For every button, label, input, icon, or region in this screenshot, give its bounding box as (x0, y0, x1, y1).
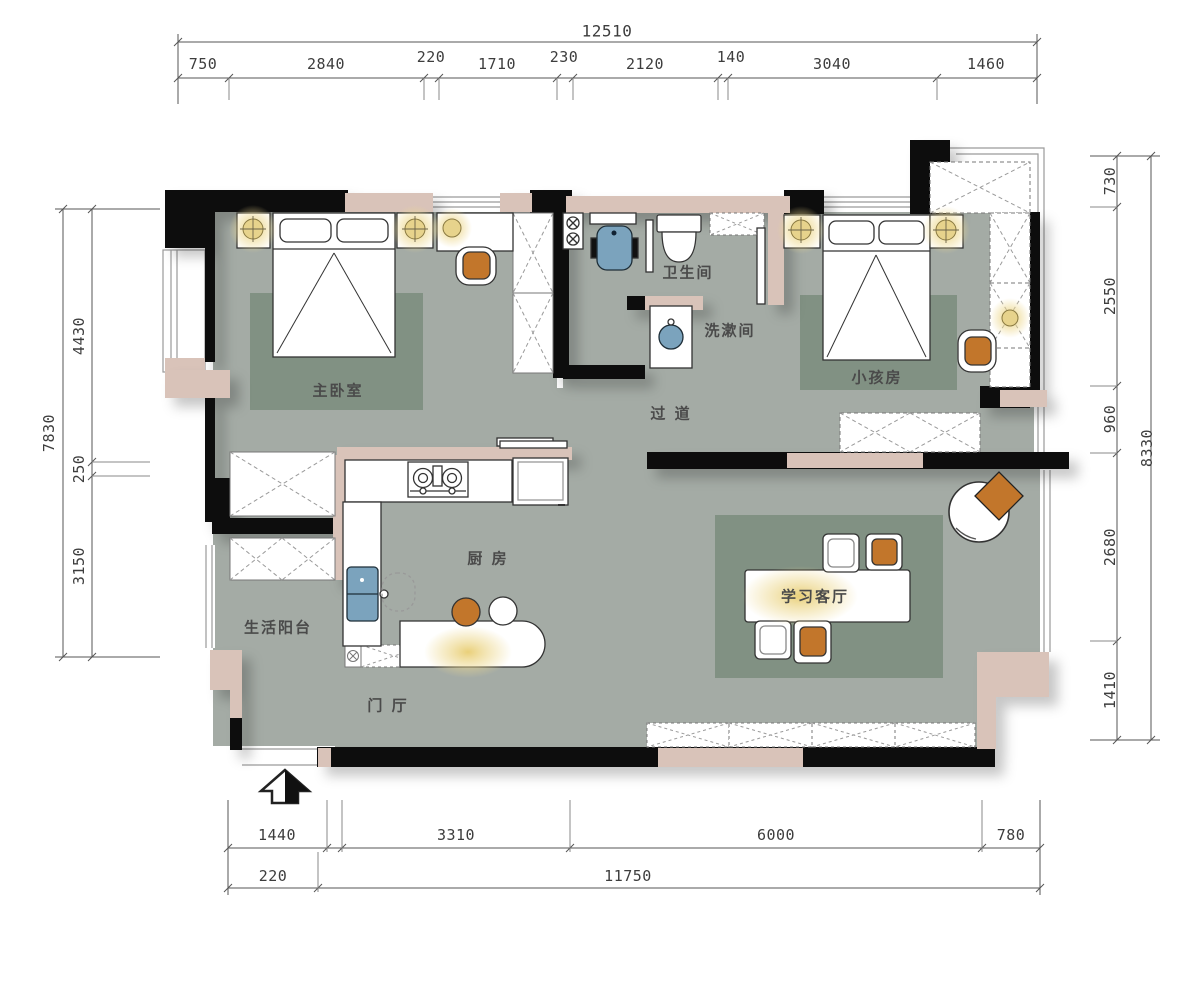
room-label-kids-room: 小孩房 (851, 367, 902, 388)
dim-top-seg: 1460 (967, 55, 1005, 73)
room-label-entry-hall: 门 厅 (367, 695, 408, 716)
utility-panel-icon (563, 213, 583, 249)
dining-chair-icon (823, 534, 859, 572)
entrance-arrow-icon (261, 770, 309, 803)
room-label-kitchen: 厨 房 (467, 548, 508, 569)
pass-shelf-icon (500, 441, 567, 448)
dining-chair-icon (866, 534, 902, 570)
dim-left-seg: 3150 (70, 547, 88, 585)
dim-top-seg: 2120 (626, 55, 664, 73)
dim-top-seg: 140 (717, 48, 746, 66)
lamp-icon (922, 206, 970, 254)
bar-stool-icon (452, 598, 480, 626)
dim-bottom-total: 11750 (604, 867, 652, 885)
room-label-corridor: 过 道 (650, 403, 691, 424)
stove-icon (408, 462, 468, 497)
fridge-icon (513, 458, 568, 505)
dim-right-seg: 960 (1101, 405, 1119, 434)
floor-plan-canvas: 12510 750 2840 220 1710 230 2120 140 304… (0, 0, 1200, 991)
door-slab-icon (757, 228, 765, 304)
bath-shelf2-icon (590, 213, 636, 224)
dim-total-top: 12510 (582, 22, 633, 41)
bath-shelf-icon (710, 213, 764, 235)
dim-top-seg: 230 (550, 48, 579, 66)
dim-bottom-seg: 1440 (258, 826, 296, 844)
dim-bottom-seg: 6000 (757, 826, 795, 844)
room-label-washroom: 洗漱间 (704, 320, 755, 341)
kids-bed-icon (823, 215, 930, 360)
shoe-cabinet-icon (840, 413, 980, 452)
dim-right-seg: 1410 (1101, 671, 1119, 709)
lamp-icon (777, 206, 825, 254)
room-label-master-bedroom: 主卧室 (312, 380, 363, 401)
dim-top-seg: 3040 (813, 55, 851, 73)
lamp-icon (432, 208, 472, 248)
master-bed-icon (273, 213, 395, 357)
master-chair-icon (456, 247, 496, 285)
dim-top-seg: 1710 (478, 55, 516, 73)
lamp-icon (990, 298, 1030, 338)
kids-closet-top-icon (930, 162, 1030, 213)
door-slab-icon (646, 220, 653, 272)
washbasin-icon (650, 306, 692, 368)
lamp-icon (229, 205, 277, 253)
laundry-sink-icon (591, 226, 638, 270)
room-label-study-living: 学习客厅 (781, 586, 849, 607)
dim-right-seg: 2680 (1101, 528, 1119, 566)
dim-right-seg: 730 (1101, 167, 1119, 196)
dim-left-seg: 4430 (70, 317, 88, 355)
dim-total-left: 7830 (40, 414, 58, 452)
room-label-bathroom: 卫生间 (662, 262, 713, 283)
dim-bottom-seg: 780 (997, 826, 1026, 844)
bar-light-glow (424, 626, 512, 678)
dim-right-seg: 2550 (1101, 277, 1119, 315)
dim-left-seg: 250 (70, 455, 88, 484)
living-bench-icon (647, 723, 975, 747)
dim-bottom-seg: 3310 (437, 826, 475, 844)
dining-chair-icon (794, 621, 831, 663)
dim-top-seg: 750 (189, 55, 218, 73)
lamp-icon (391, 205, 439, 253)
dining-chair-icon (755, 621, 791, 659)
dim-bottom-seg: 220 (259, 867, 288, 885)
master-wardrobe-icon (513, 213, 553, 373)
dim-total-right: 8330 (1138, 429, 1156, 467)
kids-chair-icon (958, 330, 996, 372)
hall-closet-icon (230, 452, 335, 580)
dim-top-seg: 2840 (307, 55, 345, 73)
bar-stool-icon (489, 597, 517, 625)
dim-top-seg: 220 (417, 48, 446, 66)
room-label-balcony: 生活阳台 (244, 617, 312, 638)
